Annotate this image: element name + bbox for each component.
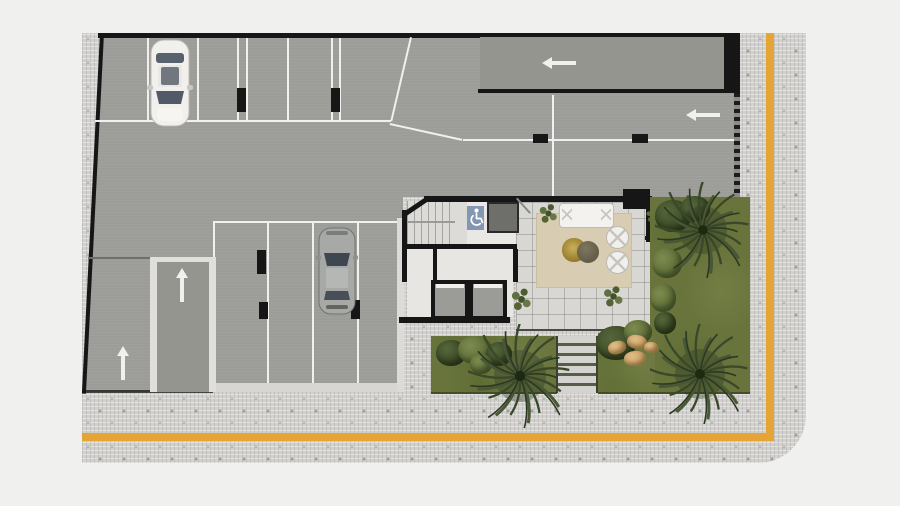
ramp-side-wall <box>724 33 740 91</box>
core-mid-wall <box>402 244 517 249</box>
tactile-stripe-vertical <box>766 33 774 441</box>
arrow-left-entry-icon <box>686 109 696 121</box>
bush <box>650 284 676 312</box>
shaft-box <box>623 189 650 209</box>
silver-car <box>316 227 358 315</box>
building-west-wall <box>402 210 407 246</box>
building-west-wall-lower <box>402 249 407 282</box>
ramp-edge-wall <box>478 89 740 93</box>
arrow-left-entry-shaft <box>696 113 720 117</box>
stall-line <box>246 38 248 122</box>
entry-ramp <box>480 37 737 91</box>
ramp-wall-right <box>209 257 216 392</box>
sofa-arm <box>601 206 611 223</box>
sofa <box>559 203 614 228</box>
stall-curb <box>213 383 403 392</box>
column-wheel-stop <box>533 134 548 143</box>
ramp-wall-left <box>150 257 157 392</box>
lane-divider <box>88 257 152 259</box>
column-wheel-stop <box>331 88 340 112</box>
core-partition-east <box>513 249 518 282</box>
arrow-up-lane-shaft <box>121 356 125 380</box>
elevator-threshold <box>436 284 464 288</box>
stair-landing <box>455 201 467 245</box>
accessible-zone <box>467 206 484 230</box>
core-partition <box>433 249 437 282</box>
column-wheel-stop <box>257 250 266 274</box>
arrow-up-ramp-shaft <box>180 278 184 302</box>
round-chair <box>606 226 629 249</box>
stall-row-line <box>213 221 402 223</box>
column-wheel-stop <box>237 88 246 112</box>
tactile-stripe-horizontal <box>82 433 774 441</box>
arrow-up-ramp-icon <box>176 268 188 278</box>
stall-line <box>312 222 314 390</box>
column-wheel-stop <box>632 134 648 143</box>
sofa-arm <box>562 206 572 223</box>
white-car <box>147 39 193 127</box>
arrow-up-lane-icon <box>117 346 129 356</box>
arrow-left-ramp-shaft <box>552 61 576 65</box>
planter-shrub <box>508 286 534 314</box>
site-plan <box>0 0 900 506</box>
round-chair <box>606 251 629 274</box>
column-wheel-stop <box>259 302 268 319</box>
stall-row-line <box>95 120 391 122</box>
stall-line <box>197 38 199 122</box>
lane-line <box>463 139 737 141</box>
arrow-left-ramp-icon <box>542 57 552 69</box>
stair-divider <box>407 221 455 223</box>
wheelchair-icon <box>467 206 484 230</box>
coffee-table <box>577 241 599 263</box>
stall-divider <box>552 95 554 198</box>
elevator-threshold <box>474 284 502 288</box>
planter-shrub <box>536 202 560 226</box>
equipment-square <box>487 202 519 233</box>
stall-line <box>287 38 289 122</box>
planter-shrub <box>600 284 626 310</box>
